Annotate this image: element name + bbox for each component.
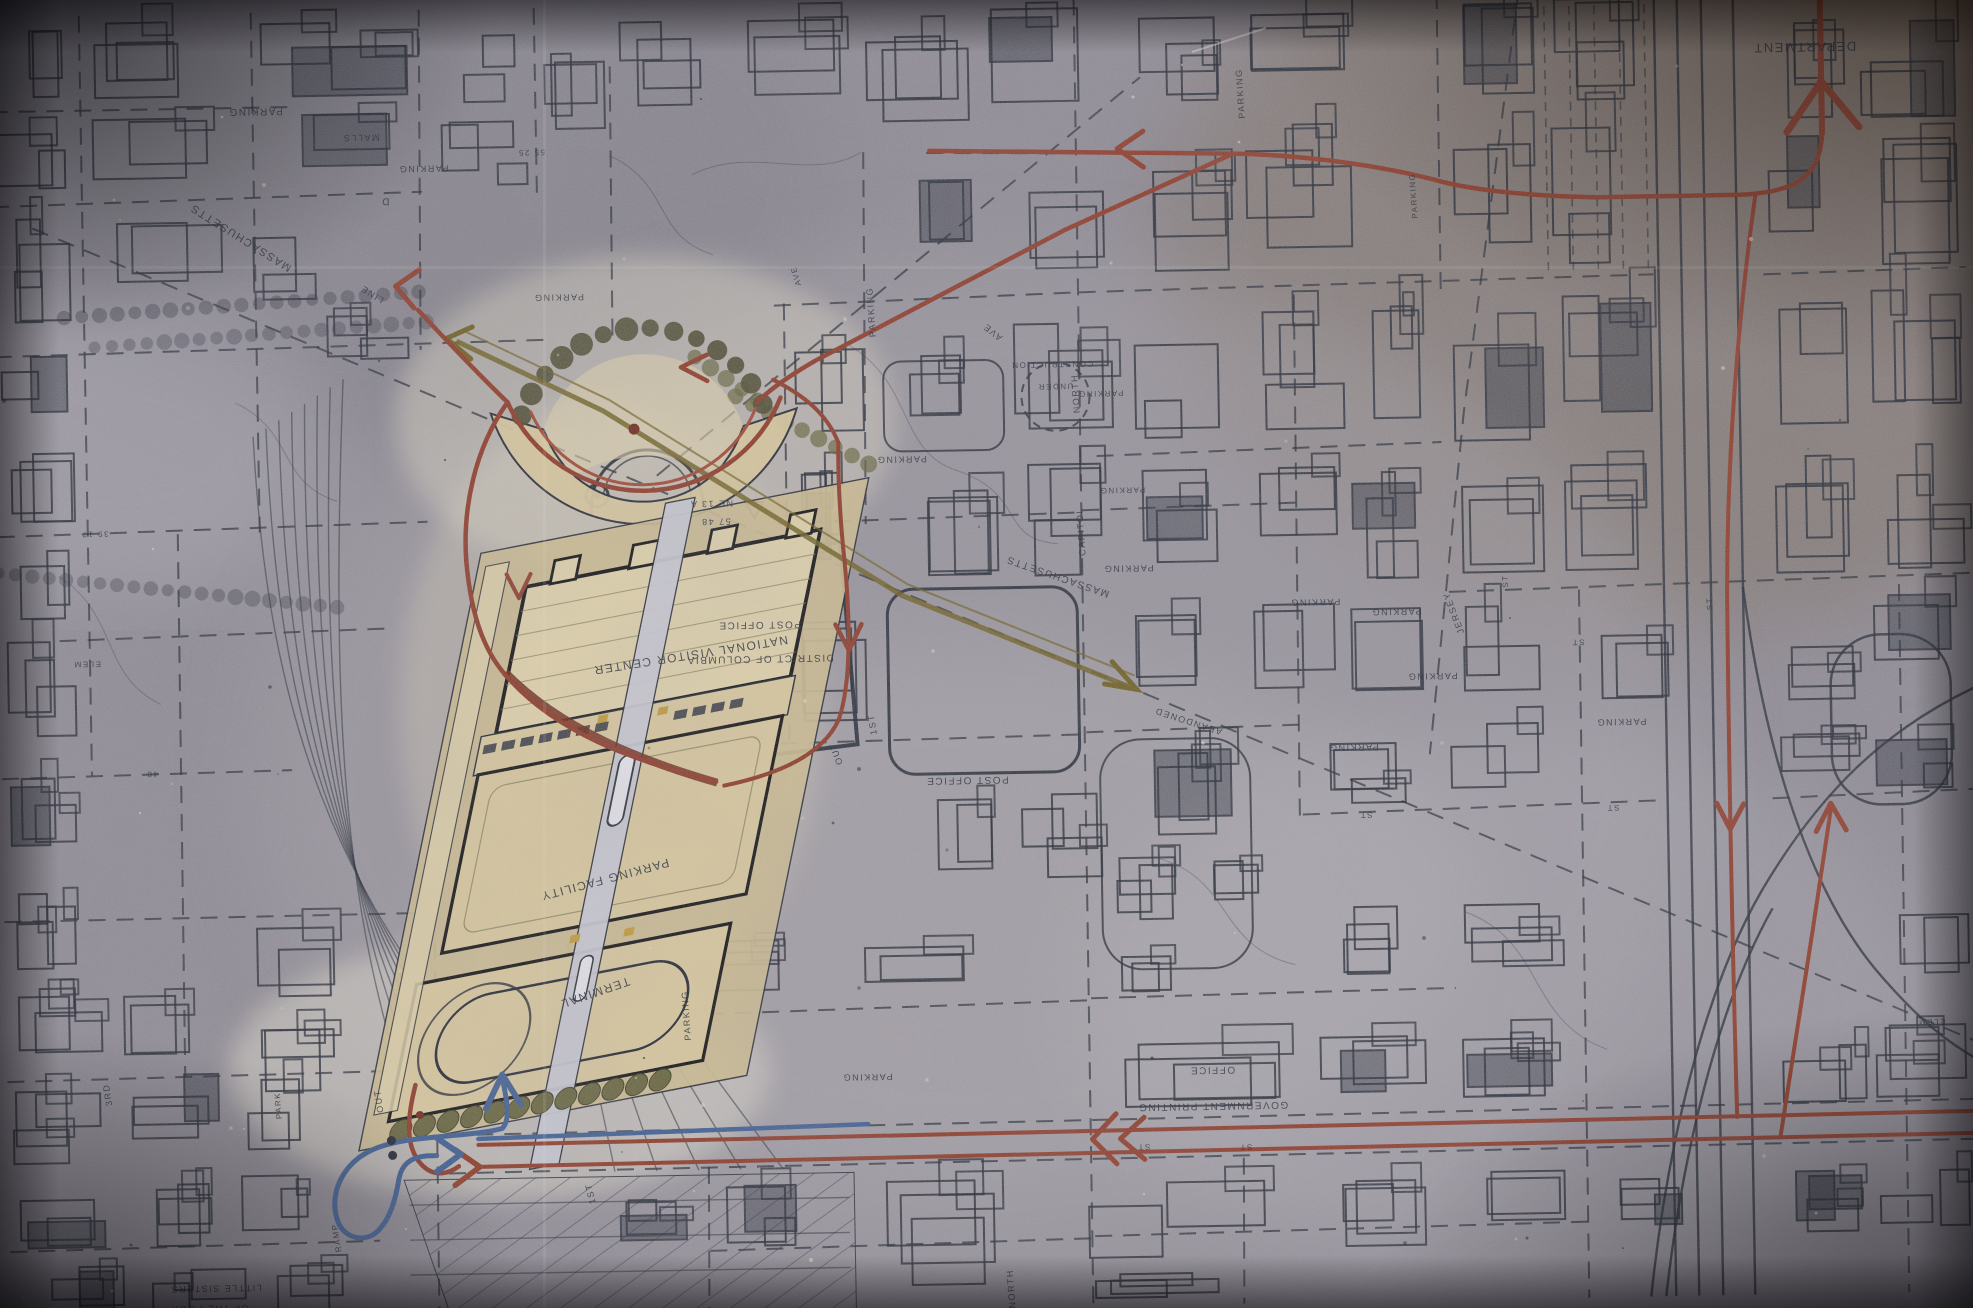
photographed-site-plan: DEPARTMENTPARKINGPARKINGMALLSPARKINGDMAS… xyxy=(0,0,1973,1308)
map-canvas: DEPARTMENTPARKINGPARKINGMALLSPARKINGDMAS… xyxy=(0,0,1973,1308)
film-grain xyxy=(0,0,1973,1308)
